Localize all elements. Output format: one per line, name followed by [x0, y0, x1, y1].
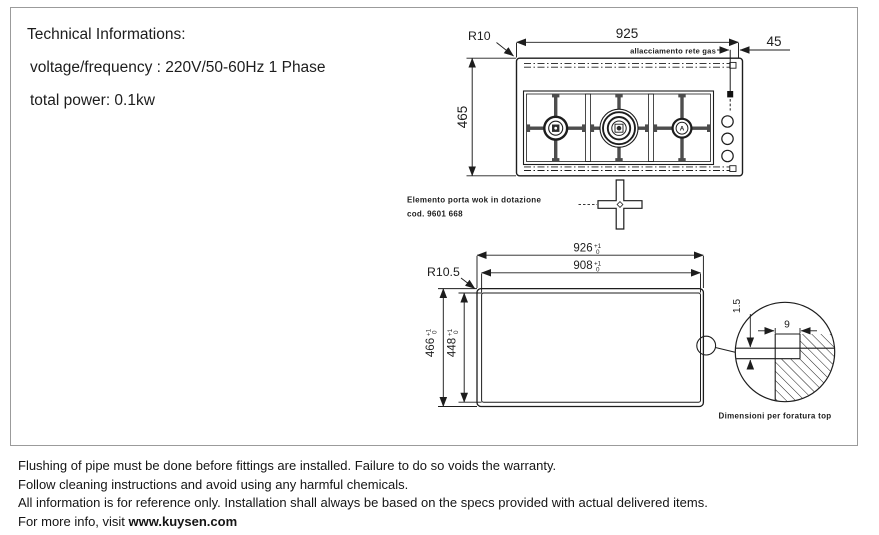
dim-926-tol-dn: 0 — [596, 249, 600, 256]
cutout-outer-rect — [477, 289, 703, 407]
dim-908-tol-dn: 0 — [596, 267, 600, 274]
detail-view: 9 1.5 Dimensioni per foratura top — [719, 299, 837, 421]
dim-466-value: 466 — [425, 338, 437, 357]
dim-466-tol-dn: 0 — [432, 330, 439, 334]
radius-r10-5-text: R10.5 — [427, 265, 460, 279]
dim-465: 465 — [455, 58, 516, 176]
detail-leader — [715, 348, 736, 353]
wok-note-line2: cod. 9601 668 — [407, 210, 463, 219]
footer-line-1: Flushing of pipe must be done before fit… — [18, 457, 708, 476]
gas-connection-point — [727, 91, 733, 97]
dim-45-text: 45 — [766, 34, 781, 49]
gas-label-callout: allacciamento rete gas — [630, 46, 729, 55]
spec-sheet-page: Technical Informations: voltage/frequenc… — [0, 0, 879, 535]
wok-support-note: Elemento porta wok in dotazione cod. 960… — [407, 180, 642, 229]
dim-908: 908 +1 0 — [482, 260, 701, 293]
knob-2 — [722, 133, 733, 144]
dim-9-text: 9 — [784, 320, 790, 331]
detail-reference-circle — [697, 336, 716, 355]
footer-line-2: Follow cleaning instructions and avoid u… — [18, 476, 708, 495]
knob-3 — [722, 150, 733, 161]
dim-926-value: 926 — [573, 242, 592, 254]
dim-448-tol-dn: 0 — [453, 330, 460, 334]
countertop-hatch-upper — [800, 334, 836, 359]
radius-callout-r10: R10 — [468, 29, 514, 56]
footer-line-4: For more info, visit www.kuysen.com — [18, 513, 708, 532]
radius-r10-text: R10 — [468, 29, 491, 43]
gas-label-text: allacciamento rete gas — [630, 46, 716, 55]
more-info-prefix: For more info, visit — [18, 514, 129, 529]
footer-line-3: All information is for reference only. I… — [18, 494, 708, 513]
wok-cross — [598, 180, 642, 229]
dim-448-value: 448 — [446, 338, 458, 357]
knob-1 — [722, 116, 733, 127]
detail-caption: Dimensioni per foratura top — [719, 412, 832, 421]
radius-callout-r10-5: R10.5 — [427, 265, 475, 289]
dim-1-5-text: 1.5 — [732, 299, 743, 314]
dim-448: 448 +1 0 — [446, 293, 481, 402]
countertop-hatch-lower — [775, 359, 836, 403]
website-link: www.kuysen.com — [129, 514, 238, 529]
hob-top-view: A 925 R10 — [455, 26, 790, 176]
dim-908-value: 908 — [573, 260, 592, 272]
cutout-drawing: 926 +1 0 908 +1 0 R10.5 — [425, 242, 736, 406]
technical-drawing: A 925 R10 — [0, 0, 879, 535]
dim-925-text: 925 — [616, 26, 639, 41]
wok-note-line1: Elemento porta wok in dotazione — [407, 196, 541, 205]
burner-right-letter: A — [680, 126, 685, 133]
control-knobs — [722, 116, 733, 162]
dim-465-text: 465 — [455, 106, 470, 129]
burner-left — [544, 117, 567, 140]
burner-center-wok — [600, 109, 638, 147]
burner-right: A — [673, 119, 692, 138]
cutout-inner-rect — [482, 293, 701, 402]
dim-45: 45 — [740, 34, 790, 50]
footer-notes: Flushing of pipe must be done before fit… — [18, 457, 708, 531]
